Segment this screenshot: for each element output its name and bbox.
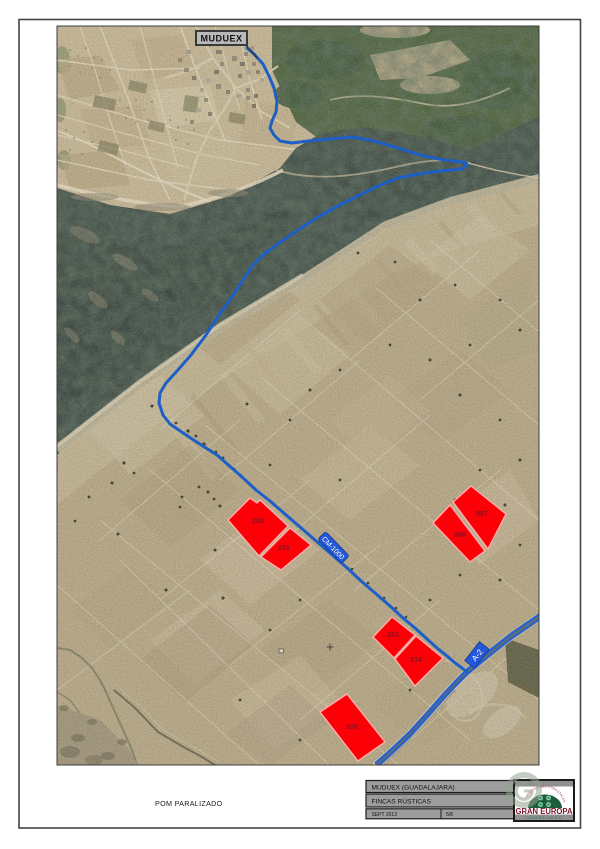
svg-text:INVERSIONES: INVERSIONES [526,816,562,820]
svg-text:986: 986 [454,532,466,539]
svg-text:221: 221 [278,545,290,552]
svg-text:234: 234 [410,657,422,664]
svg-text:5/8: 5/8 [446,812,453,818]
svg-text:FINCAS RÚSTICAS: FINCAS RÚSTICAS [372,797,432,806]
svg-text:SEPT 2013: SEPT 2013 [372,812,398,818]
svg-text:POM PARALIZADO: POM PARALIZADO [155,799,223,808]
svg-text:220: 220 [252,518,264,525]
svg-text:236: 236 [346,724,358,731]
svg-text:MUDUEX: MUDUEX [200,34,242,44]
svg-text:233: 233 [387,632,399,639]
svg-text:987: 987 [476,511,488,518]
svg-text:MUDUEX (GUADALAJARA): MUDUEX (GUADALAJARA) [372,785,455,792]
